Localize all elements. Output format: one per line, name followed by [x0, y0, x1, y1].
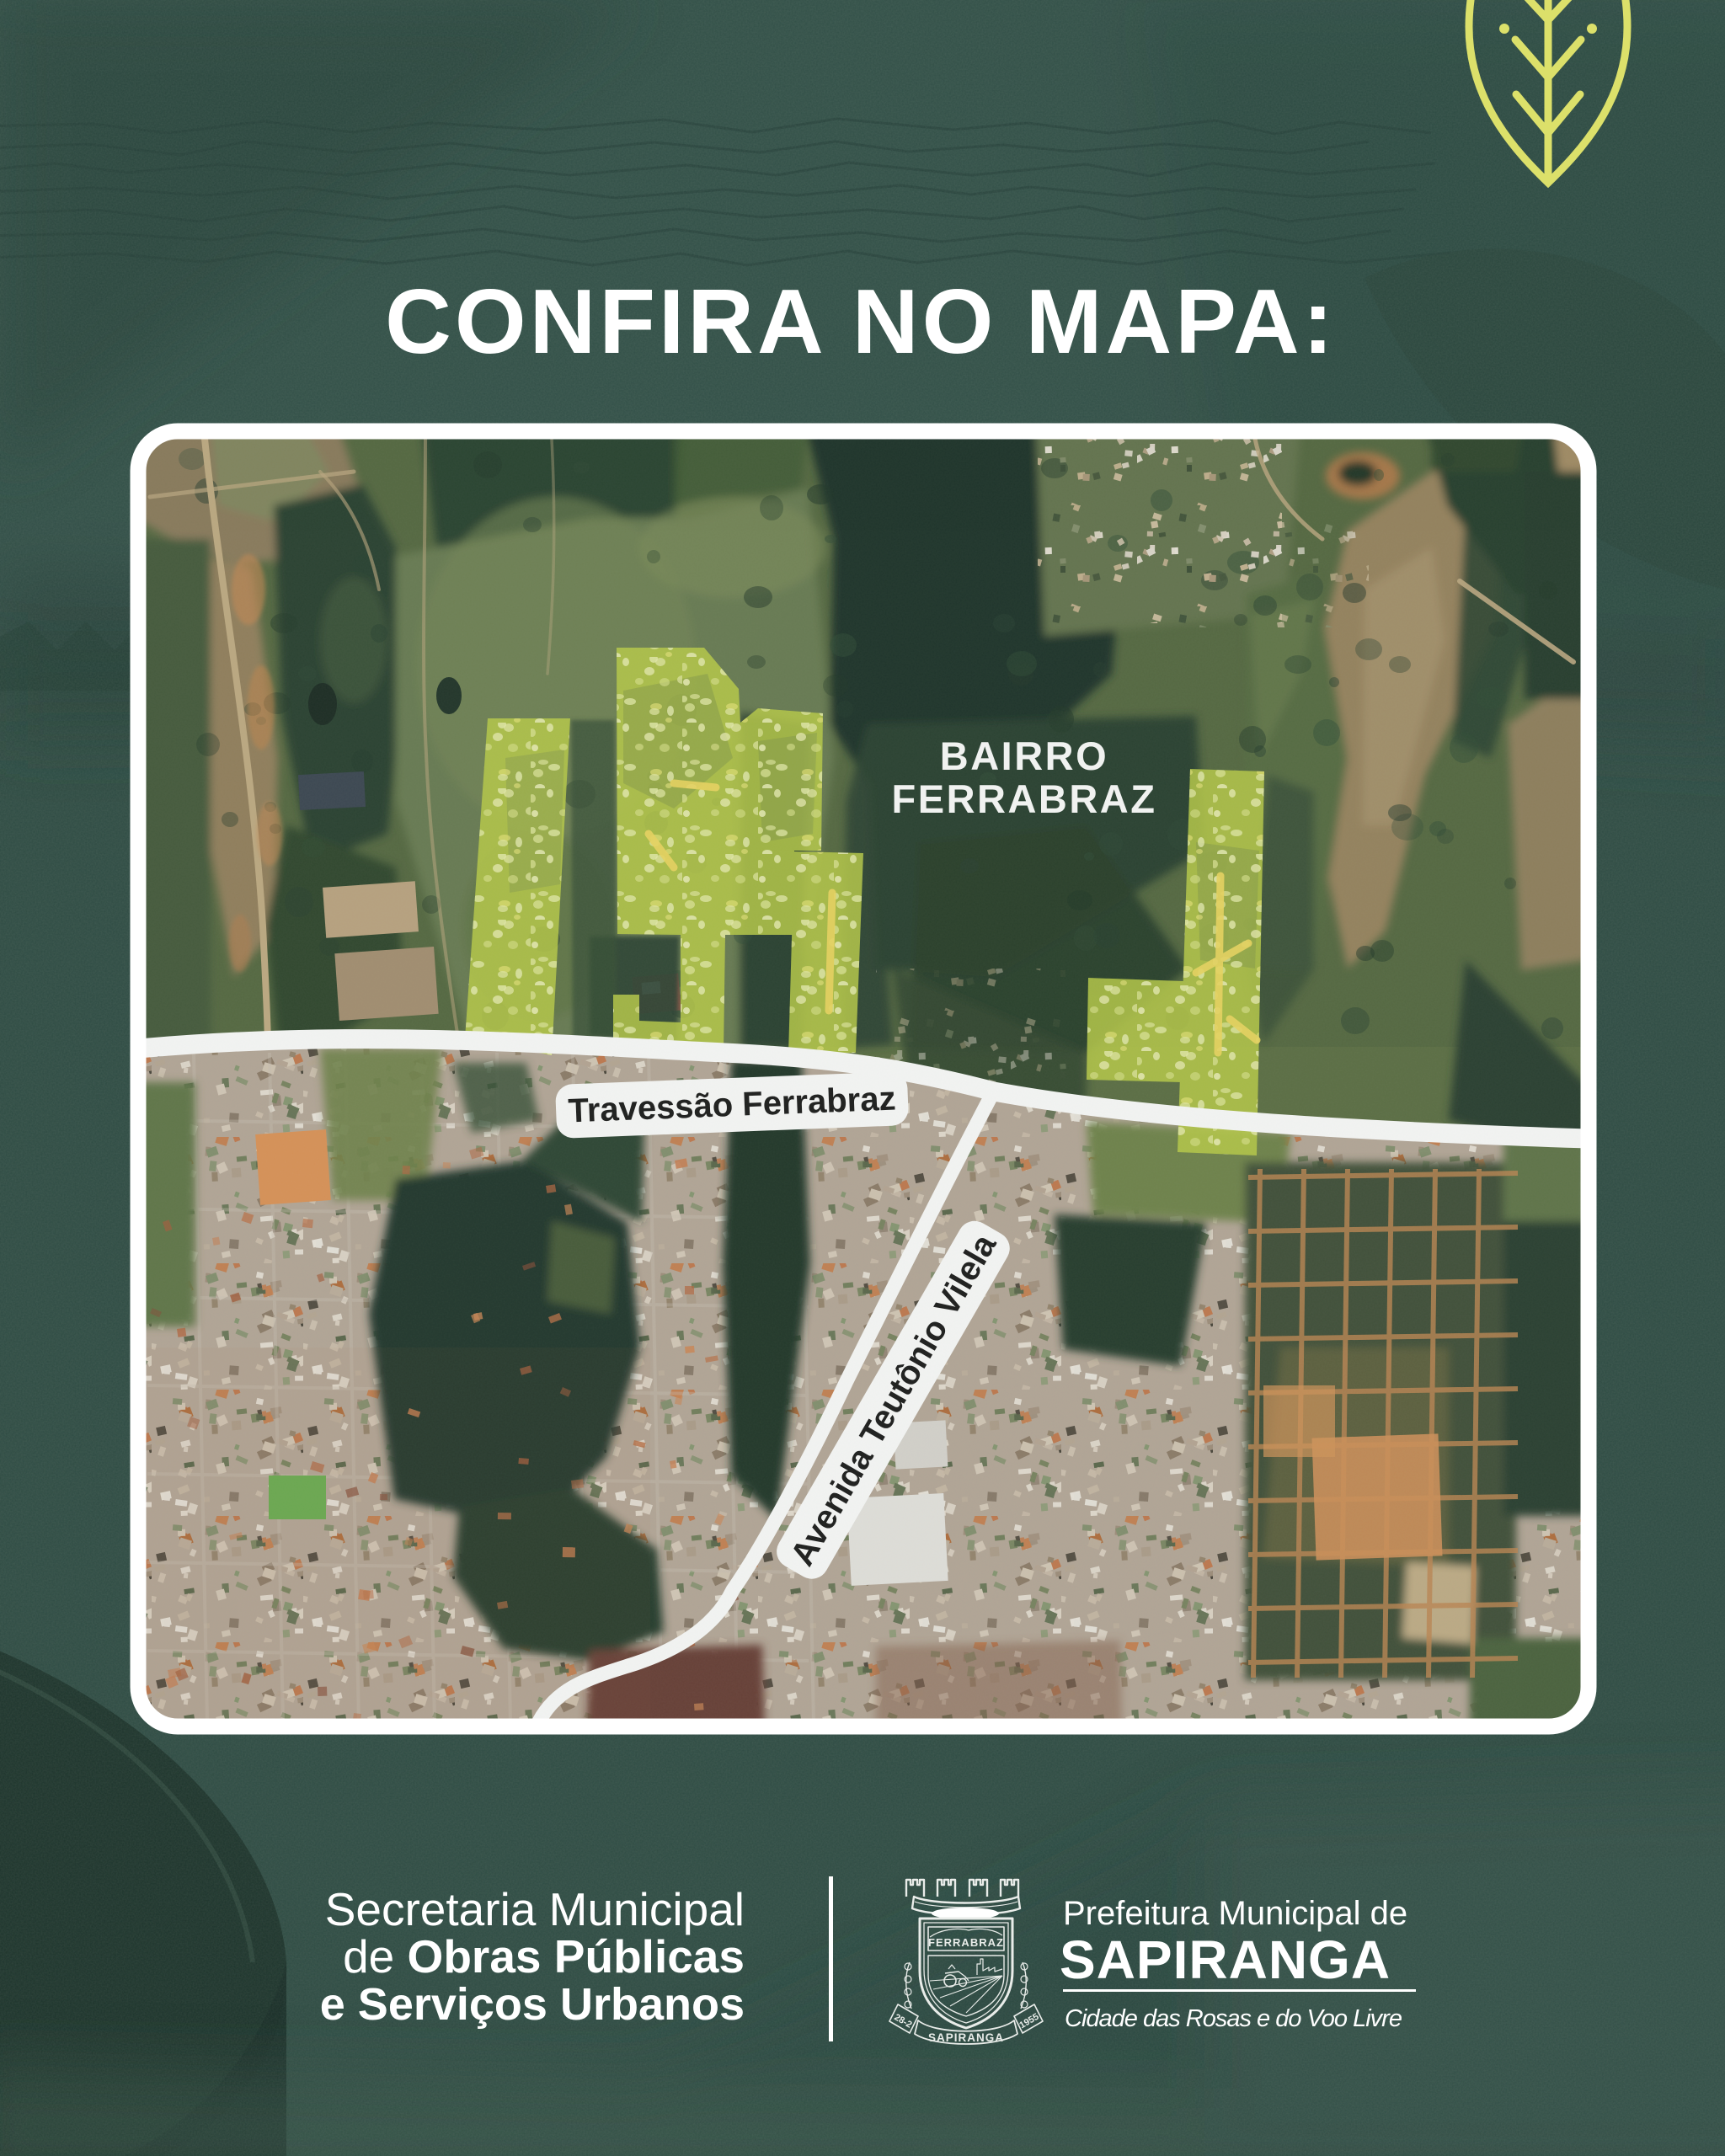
svg-text:Secretaria Municipal: Secretaria Municipal [325, 1883, 745, 1935]
svg-text:CONFIRA NO MAPA:: CONFIRA NO MAPA: [385, 270, 1337, 373]
svg-text:de Obras Públicas: de Obras Públicas [343, 1930, 745, 1983]
svg-text:Prefeitura Municipal de: Prefeitura Municipal de [1063, 1895, 1407, 1932]
svg-text:Cidade das Rosas e do Voo Livr: Cidade das Rosas e do Voo Livre [1065, 2005, 1402, 2032]
svg-text:SAPIRANGA: SAPIRANGA [1060, 1929, 1391, 1990]
svg-text:e Serviços Urbanos: e Serviços Urbanos [320, 1979, 745, 2030]
svg-text:FERRABRAZ: FERRABRAZ [928, 1936, 1004, 1949]
svg-text:SAPIRANGA: SAPIRANGA [928, 2031, 1004, 2044]
